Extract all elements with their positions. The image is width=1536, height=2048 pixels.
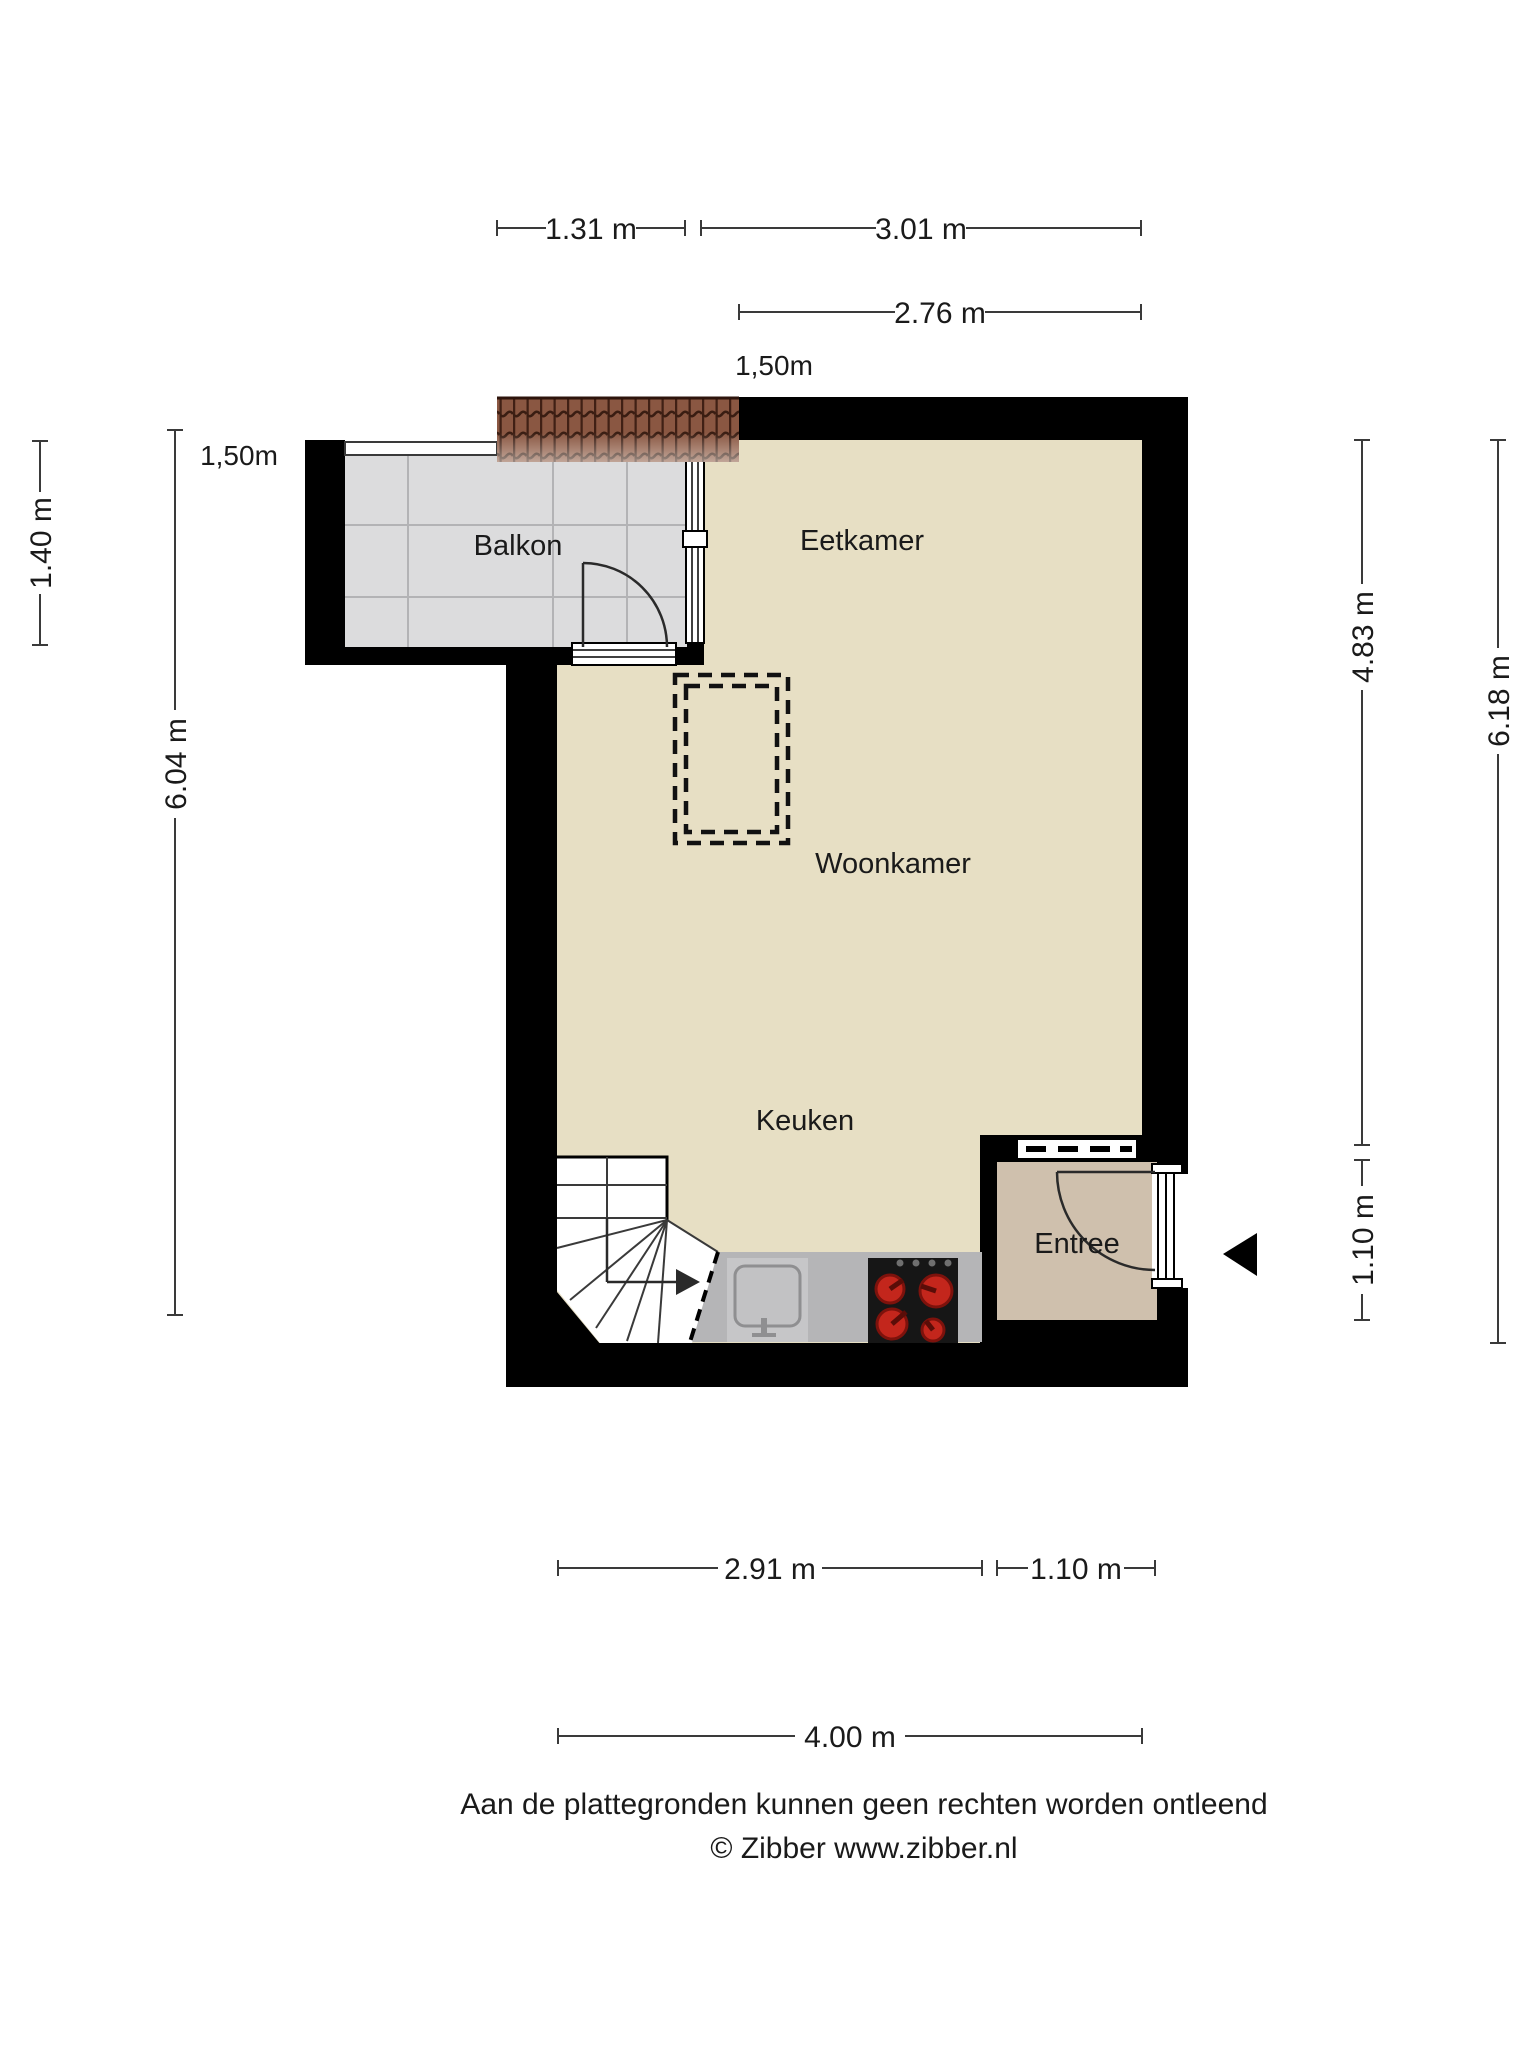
dim-roof-left-label: 1,50m: [200, 440, 278, 471]
svg-text:6.18 m: 6.18 m: [1483, 655, 1516, 747]
balcony-window-wall: [683, 453, 707, 643]
wall-balcony-left: [305, 440, 345, 665]
dim-roof-width-label: 1,50m: [735, 350, 813, 381]
svg-text:6.04 m: 6.04 m: [160, 718, 193, 810]
svg-text:1.31 m: 1.31 m: [545, 213, 637, 246]
svg-text:4.00 m: 4.00 m: [804, 1721, 896, 1754]
svg-text:2.76 m: 2.76 m: [894, 297, 986, 330]
copyright-text: © Zibber www.zibber.nl: [710, 1832, 1017, 1865]
room-label-eetkamer: Eetkamer: [800, 525, 924, 557]
wall-right: [1142, 397, 1188, 1162]
svg-text:1.10 m: 1.10 m: [1347, 1194, 1380, 1286]
floorplan-drawing: Balkon Eetkamer Woonkamer Keuken Entree …: [0, 0, 1536, 2048]
dim-top-276: 2.76 m: [739, 297, 1141, 330]
footer: Aan de plattegronden kunnen geen rechten…: [460, 1788, 1267, 1865]
svg-text:2.91 m: 2.91 m: [724, 1553, 816, 1586]
balcony-door-threshold: [572, 643, 676, 665]
floorplan-page: Balkon Eetkamer Woonkamer Keuken Entree …: [0, 0, 1536, 2048]
sink: [735, 1266, 800, 1326]
entrance-arrow-icon: [1223, 1233, 1257, 1276]
entree-window: [1017, 1139, 1137, 1159]
svg-text:1.10 m: 1.10 m: [1030, 1553, 1122, 1586]
wall-bottom: [506, 1343, 998, 1387]
room-label-entree: Entree: [1034, 1228, 1119, 1260]
dim-right-618: 6.18 m: [1483, 440, 1516, 1343]
kitchen-counter: [690, 1252, 982, 1343]
room-label-keuken: Keuken: [756, 1105, 854, 1137]
svg-text:4.83 m: 4.83 m: [1347, 591, 1380, 683]
dim-bottom-400: 4.00 m: [558, 1721, 1142, 1754]
entree-door-frame: [1152, 1164, 1182, 1288]
dim-bottom-291: 2.91 m: [558, 1553, 982, 1586]
dim-right-483: 4.83 m: [1347, 440, 1380, 1145]
dim-top-301: 3.01 m: [701, 213, 1141, 246]
wall-top: [688, 397, 1188, 440]
wall-entree-left: [980, 1135, 997, 1345]
dim-top-131: 1.31 m: [497, 213, 685, 246]
disclaimer-text: Aan de plattegronden kunnen geen rechten…: [460, 1788, 1267, 1821]
balcony-railing: [345, 442, 497, 455]
svg-text:1.40 m: 1.40 m: [25, 497, 58, 589]
room-label-balkon: Balkon: [474, 530, 563, 562]
room-label-woonkamer: Woonkamer: [815, 848, 971, 880]
stove: [868, 1258, 958, 1343]
wall-entree-right-lower: [1157, 1288, 1188, 1345]
dim-left-140: 1.40 m: [25, 441, 58, 645]
dim-bottom-110: 1.10 m: [997, 1553, 1155, 1586]
svg-text:3.01 m: 3.01 m: [875, 213, 967, 246]
wall-main-left: [506, 643, 557, 1292]
dim-right-110: 1.10 m: [1347, 1160, 1380, 1320]
dim-left-604: 6.04 m: [160, 430, 193, 1315]
roof-strip: [497, 397, 739, 462]
